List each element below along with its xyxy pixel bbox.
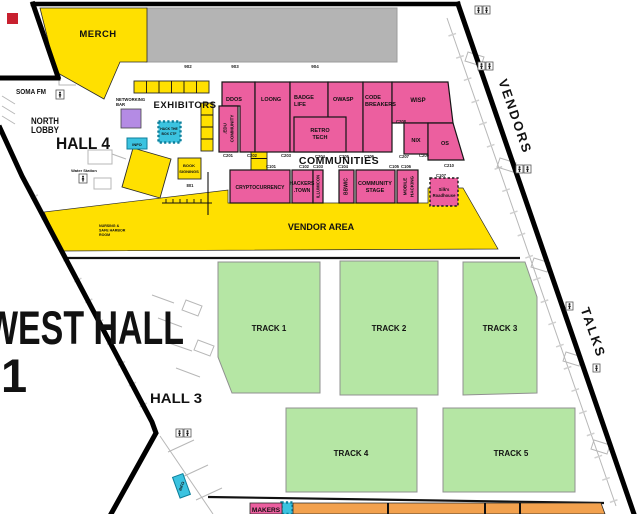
water-station-label: Water Station bbox=[71, 168, 97, 173]
north-lobby-label-line2: LOBBY bbox=[31, 125, 59, 135]
owasp-label: OWASP bbox=[333, 97, 354, 103]
west-hall-number: 1 bbox=[1, 349, 27, 402]
svg-text:C103: C103 bbox=[313, 164, 324, 169]
svg-text:C210: C210 bbox=[444, 163, 455, 168]
community-code-breakers bbox=[363, 82, 392, 152]
hackers-town-label-line2: .TOWN bbox=[294, 188, 311, 194]
badge-life-label-line1: BADGE bbox=[294, 95, 314, 101]
community-mobile-hacking bbox=[397, 170, 418, 203]
book-signings-label-line1: BOOK bbox=[183, 163, 195, 168]
hall-3-label: HALL 3 bbox=[150, 390, 202, 406]
silks-roadhouse-label-line1: Silk's bbox=[439, 187, 450, 192]
track-4-label: TRACK 4 bbox=[334, 449, 369, 458]
vendor-area-label: VENDOR AREA bbox=[288, 222, 355, 232]
soma-fm-label: SOMA FM bbox=[16, 89, 46, 96]
hall-4-label: HALL 4 bbox=[56, 134, 110, 153]
booth-number-903: 903 bbox=[231, 64, 239, 69]
vendors-label: VENDORS bbox=[495, 77, 535, 156]
networking-bar-area bbox=[121, 109, 141, 128]
info-booth-label: INFO bbox=[132, 142, 142, 147]
edu-label-line1: .EDU bbox=[223, 123, 228, 134]
floor-plan-svg: 902 903 904 MERCH VENDOR AREA 801 BOOK S… bbox=[0, 0, 640, 514]
track-1-label: TRACK 1 bbox=[252, 324, 287, 333]
makers-label: MAKERS bbox=[252, 507, 281, 514]
community-stage-label-line1: COMMUNITY bbox=[358, 181, 392, 187]
os-label: OS bbox=[441, 141, 449, 147]
booth-number-801: 801 bbox=[187, 183, 195, 188]
svg-text:C105: C105 bbox=[389, 164, 400, 169]
communities-top-row bbox=[219, 82, 464, 160]
track-5-label: TRACK 5 bbox=[494, 449, 529, 458]
community-loong bbox=[255, 82, 290, 152]
west-hall-label: WEST HALL bbox=[0, 301, 184, 354]
svg-text:C203: C203 bbox=[281, 153, 292, 158]
svg-text:C201: C201 bbox=[223, 153, 234, 158]
water-station-icon bbox=[566, 302, 573, 310]
water-station-icon bbox=[593, 364, 600, 372]
svg-text:C208: C208 bbox=[396, 119, 407, 124]
booth-number-904: 904 bbox=[311, 64, 319, 69]
water-station-icon bbox=[79, 174, 87, 183]
restroom-icon bbox=[475, 6, 490, 14]
wisp-label: WISP bbox=[410, 98, 425, 104]
gray-storage-block bbox=[146, 8, 397, 62]
mobile-hacking-label-line1: MOBILE bbox=[403, 178, 408, 196]
mobile-hacking-label-line2: HACKING bbox=[410, 176, 415, 197]
restroom-icon bbox=[478, 62, 493, 70]
code-breakers-label-line2: BREAKERS bbox=[365, 102, 396, 108]
nursing-room-label-line3: ROOM bbox=[99, 233, 110, 237]
illumicon-label: ILLUMICON bbox=[316, 175, 321, 198]
cryptocurrency-label: CRYPTOCURRENCY bbox=[236, 185, 286, 191]
svg-text:C106: C106 bbox=[401, 164, 412, 169]
retro-tech-label-line2: TECH bbox=[313, 135, 328, 141]
nursing-room-label-line2: SAFE HARBOR bbox=[99, 229, 126, 233]
hack-the-box-label-line2: BOX CTF bbox=[162, 132, 177, 136]
svg-text:C101: C101 bbox=[266, 164, 277, 169]
nix-label: NIX bbox=[411, 138, 421, 144]
hackers-town-label-line1: HACKERS bbox=[290, 181, 315, 187]
exhibitors-label: EXHIBITORS bbox=[154, 100, 217, 111]
talks-label: TALKS bbox=[578, 305, 609, 359]
book-signings-label-line2: SIGNINGS bbox=[179, 169, 199, 174]
community-silks-roadhouse bbox=[430, 178, 458, 206]
track-2-label: TRACK 2 bbox=[372, 324, 407, 333]
floor-plan-map: 902 903 904 MERCH VENDOR AREA 801 BOOK S… bbox=[0, 0, 640, 514]
hack-the-box-label-line1: HACK THE bbox=[160, 127, 178, 131]
edu-label-line2: COMMUNITY bbox=[230, 115, 235, 143]
restroom-icon bbox=[176, 429, 191, 437]
svg-text:C207: C207 bbox=[399, 154, 410, 159]
community-stage-label-line2: STAGE bbox=[366, 188, 385, 194]
merch-label: MERCH bbox=[79, 29, 116, 40]
track-3-label: TRACK 3 bbox=[483, 324, 518, 333]
bbwic-label: BBWIC bbox=[344, 178, 350, 195]
red-marker-box bbox=[7, 13, 18, 24]
silks-roadhouse-label-line2: Roadhouse bbox=[433, 193, 456, 198]
svg-text:C202: C202 bbox=[247, 153, 258, 158]
badge-life-label-line2: LIFE bbox=[294, 102, 306, 108]
nursing-room-label-line1: NURSING & bbox=[99, 224, 120, 228]
merch-area bbox=[40, 8, 147, 99]
svg-text:C102: C102 bbox=[299, 164, 310, 169]
retro-tech-label-line1: RETRO bbox=[310, 128, 330, 134]
svg-text:C107: C107 bbox=[436, 173, 447, 178]
booth-number-902: 902 bbox=[184, 64, 192, 69]
svg-text:C209: C209 bbox=[419, 153, 430, 158]
makers-strip-line bbox=[208, 497, 604, 503]
code-breakers-label-line1: CODE bbox=[365, 95, 381, 101]
ddos-label: DDOS bbox=[226, 97, 242, 103]
makers-orange-strip bbox=[293, 503, 605, 514]
water-station-icon bbox=[56, 90, 64, 99]
restroom-icon bbox=[516, 165, 531, 173]
networking-bar-label-line2: BAR bbox=[116, 102, 125, 107]
loong-label: LOONG bbox=[261, 97, 281, 103]
svg-text:C104: C104 bbox=[338, 164, 349, 169]
cyan-checker-box-makers bbox=[282, 503, 293, 514]
